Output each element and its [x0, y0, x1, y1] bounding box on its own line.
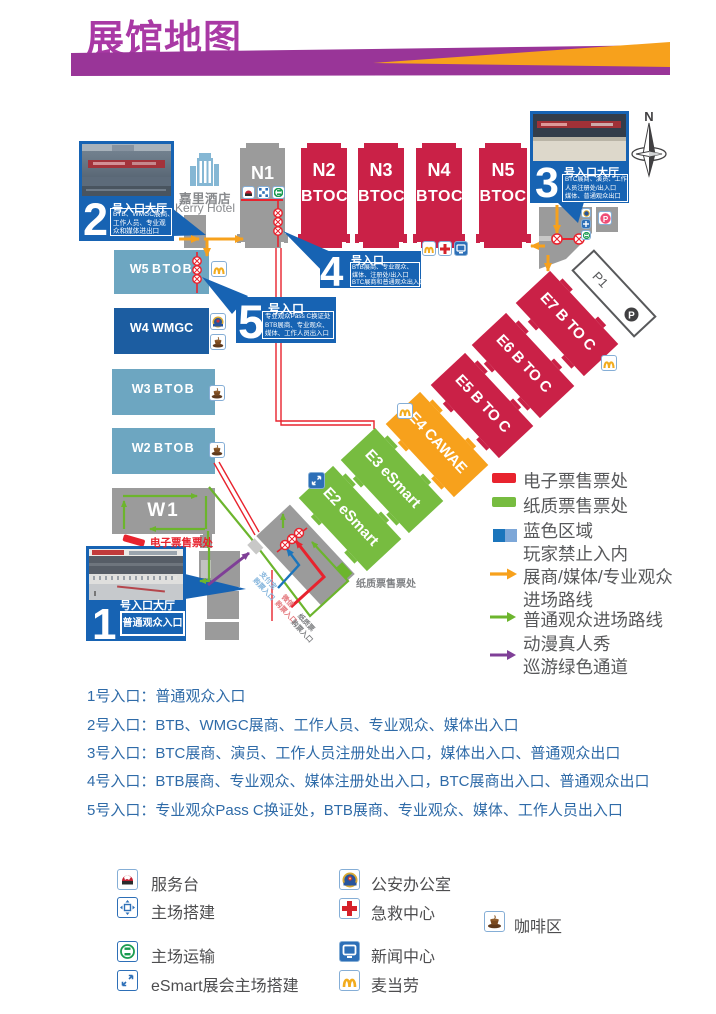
svg-text:N: N	[644, 109, 653, 124]
svg-text:P: P	[602, 214, 608, 223]
svg-text:P: P	[628, 311, 635, 322]
